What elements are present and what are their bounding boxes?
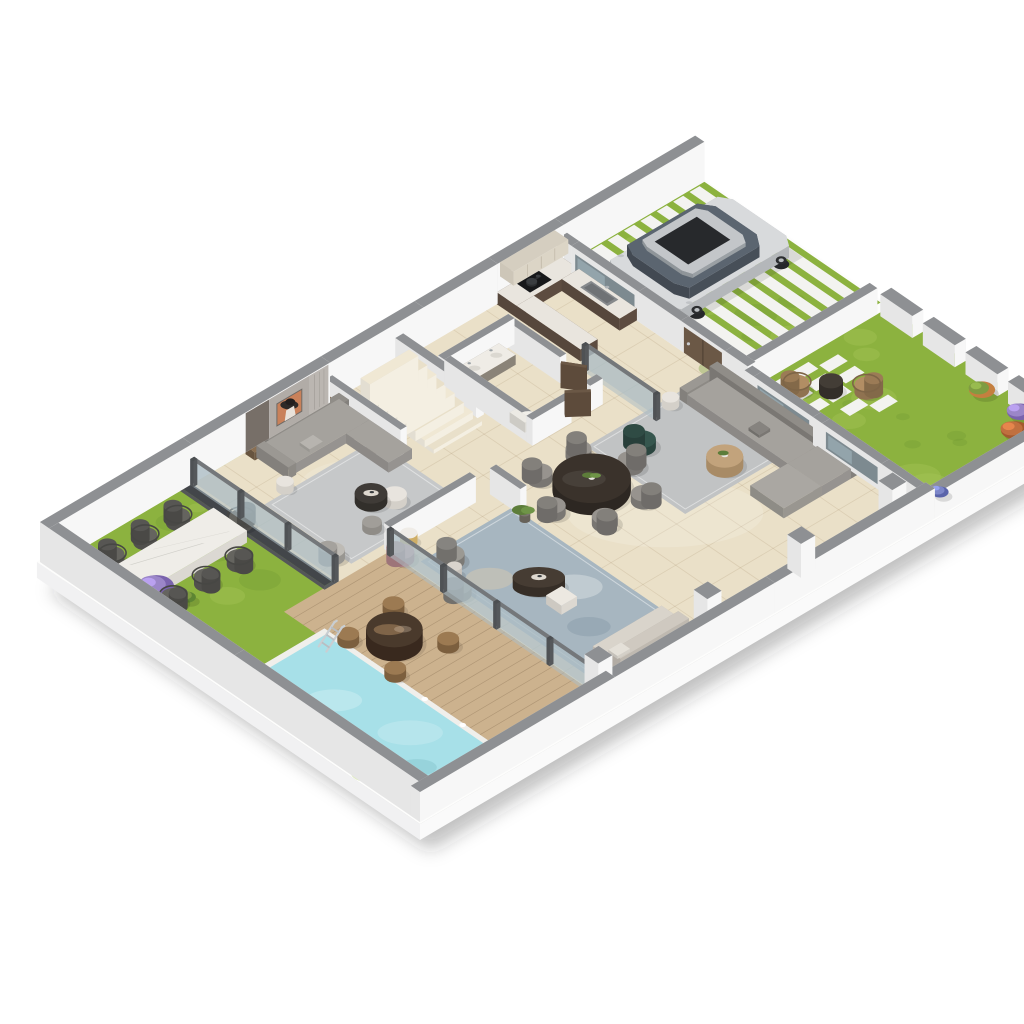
floor-plan-3d bbox=[0, 0, 1024, 1024]
item-bistro-chair-2 bbox=[853, 372, 884, 401]
item-bath-door-2 bbox=[561, 361, 588, 392]
item-bath-door-1 bbox=[565, 389, 591, 417]
page bbox=[0, 0, 1024, 1024]
item-deck-table bbox=[366, 612, 427, 662]
objects-3d bbox=[40, 136, 1024, 822]
wall-pillar-dining-2 bbox=[787, 526, 815, 578]
